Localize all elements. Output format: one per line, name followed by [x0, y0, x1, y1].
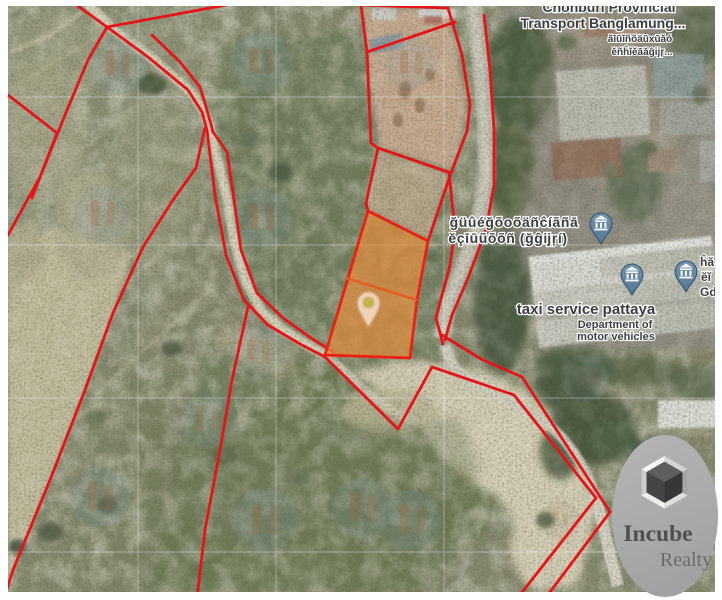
svg-text:Incube: Incube	[623, 521, 692, 547]
svg-text:ğüûéğõoõäñĉíãñā: ğüûéğõoõäñĉíãñā	[450, 214, 579, 230]
svg-text:Realty: Realty	[660, 549, 712, 571]
svg-text:ĥă: ĥă	[700, 254, 714, 269]
svg-text:Transport Banglamung...: Transport Banglamung...	[521, 15, 686, 31]
svg-text:ĕçīūũõõñ (ğĝĳŗí): ĕçīūũõõñ (ğĝĳŗí)	[448, 230, 567, 246]
svg-text:Department of: Department of	[578, 319, 653, 331]
svg-text:ĕĭ: ĕĭ	[701, 270, 712, 284]
svg-text:Gd: Gd	[700, 285, 717, 299]
svg-text:ĕñĥĭĕāăĝĳŗ...: ĕñĥĭĕāăĝĳŗ...	[611, 44, 672, 58]
svg-text:ăīūĭñõäūxūăó: ăīūĭñõäūxūăó	[608, 34, 672, 45]
svg-text:motor vehicles: motor vehicles	[577, 331, 655, 343]
svg-text:Google: Google	[578, 287, 623, 302]
svg-text:taxi service pattaya: taxi service pattaya	[517, 301, 656, 318]
